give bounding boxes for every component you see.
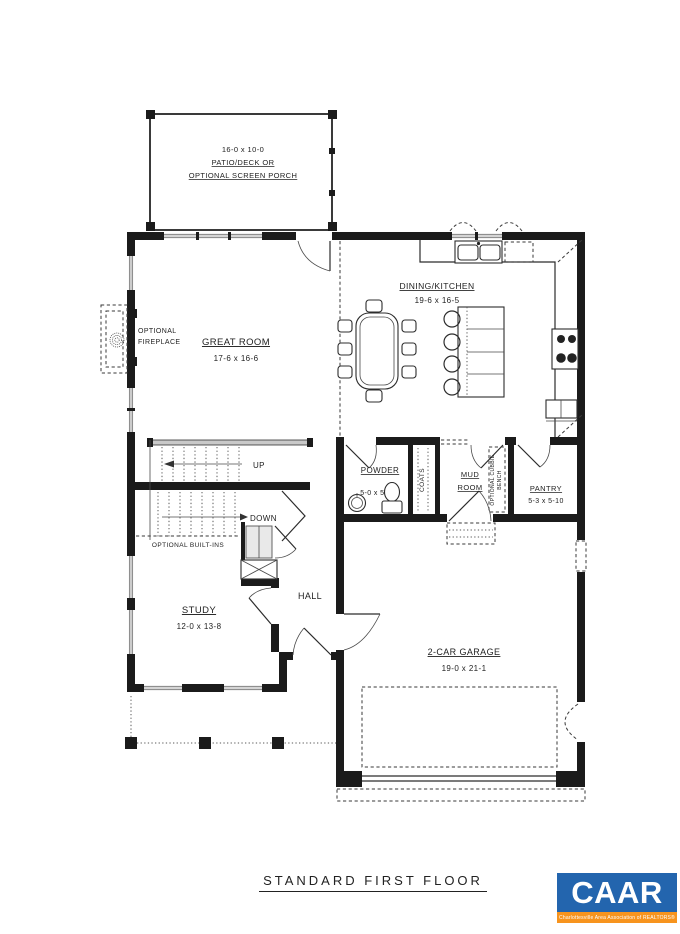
hall-label: HALL xyxy=(298,591,322,601)
refrigerator-icon xyxy=(546,400,577,421)
patio-label-2: OPTIONAL SCREEN PORCH xyxy=(189,171,298,180)
hall-closet-icon xyxy=(241,560,277,579)
garage-door-icon xyxy=(362,776,556,781)
front-door-icon xyxy=(293,628,331,655)
optional-built-ins-label: OPTIONAL BUILT-INS xyxy=(152,542,224,549)
optional-service-door-icon xyxy=(565,704,578,740)
patio-dims: 16-0 x 10-0 xyxy=(222,145,264,154)
pantry-label: PANTRY xyxy=(530,484,562,493)
dining-kitchen-label: DINING/KITCHEN xyxy=(399,281,474,291)
stairs-down-treads xyxy=(158,492,235,538)
dining-table-icon xyxy=(338,300,416,402)
porch-post xyxy=(199,737,211,749)
great-room-label: GREAT ROOM xyxy=(202,337,270,348)
coats-label: COATS xyxy=(419,468,426,492)
fireplace-label-2: FIREPLACE xyxy=(138,339,181,346)
great-room-dims: 17-6 x 16-6 xyxy=(214,354,259,363)
powder-door-icon xyxy=(346,445,376,468)
patio-label-1: PATIO/DECK OR xyxy=(212,158,275,167)
porch-post xyxy=(125,737,137,749)
dining-kitchen: DINING/KITCHEN 19-6 x 16-5 xyxy=(338,239,583,437)
powder-room: POWDER 5-0 x 5-10 xyxy=(349,466,403,513)
patio-deck: 16-0 x 10-0 PATIO/DECK OR OPTIONAL SCREE… xyxy=(146,110,337,231)
kitchen-sink-icon xyxy=(455,241,502,263)
dining-kitchen-dims: 19-6 x 16-5 xyxy=(415,296,460,305)
optional-fireplace: OPTIONAL FIREPLACE xyxy=(101,305,181,373)
driveway-apron xyxy=(337,789,585,801)
hall-to-garage-door-icon xyxy=(344,614,380,650)
powder-label: POWDER xyxy=(361,466,399,475)
garage-dims: 19-0 x 21-1 xyxy=(442,664,487,673)
mud-room-label-1: MUD xyxy=(461,470,479,479)
study-door-icon xyxy=(249,588,271,624)
porch-post xyxy=(272,737,284,749)
stair-closet-door-icon xyxy=(246,526,296,558)
cubbie-label-1: OPTIONAL CUBBIE xyxy=(490,454,496,505)
caar-logo: CAAR Charlottesville Area Association of… xyxy=(557,873,677,923)
mud-room-label-2: ROOM xyxy=(458,483,483,492)
fireplace-label-1: OPTIONAL xyxy=(138,328,177,335)
kitchen-island-icon xyxy=(444,307,504,397)
toilet-icon xyxy=(382,483,402,514)
stair-break-line xyxy=(282,491,305,541)
cubbie-label-2: BENCH xyxy=(497,470,503,490)
plan-title-text: STANDARD FIRST FLOOR xyxy=(259,873,487,892)
garage-label: 2-CAR GARAGE xyxy=(428,647,501,657)
mud-room: MUD ROOM OPTIONAL CUBBIE BENCH xyxy=(447,447,505,544)
garage: 2-CAR GARAGE 19-0 x 21-1 xyxy=(337,647,585,801)
caar-logo-tagline: Charlottesville Area Association of REAL… xyxy=(557,912,677,923)
study: OPTIONAL BUILT-INS STUDY 12-0 x 13-8 xyxy=(136,536,240,631)
garage-bay-outline xyxy=(362,687,557,767)
garage-stoop xyxy=(447,523,495,544)
floor-plan-page: 16-0 x 10-0 PATIO/DECK OR OPTIONAL SCREE… xyxy=(0,0,680,934)
caar-logo-text: CAAR xyxy=(557,873,677,912)
pantry: PANTRY 5-3 x 5-10 xyxy=(528,484,564,505)
floor-plan-drawing: 16-0 x 10-0 PATIO/DECK OR OPTIONAL SCREE… xyxy=(0,0,680,934)
study-dims: 12-0 x 13-8 xyxy=(177,622,222,631)
stairs-down-label: DOWN xyxy=(250,514,277,523)
pantry-door-icon xyxy=(518,445,550,467)
fireplace-icon xyxy=(110,333,124,347)
study-label: STUDY xyxy=(182,605,216,616)
pantry-dims: 5-3 x 5-10 xyxy=(528,498,564,505)
front-porch xyxy=(125,696,336,749)
coats-closet: COATS xyxy=(418,448,428,512)
patio-door-icon xyxy=(298,241,330,271)
dishwasher-icon xyxy=(505,242,533,262)
cooktop-icon xyxy=(552,329,578,369)
stairs-up-label: UP xyxy=(253,461,265,470)
great-room: GREAT ROOM 17-6 x 16-6 xyxy=(202,241,340,436)
stair-railing xyxy=(151,440,309,445)
